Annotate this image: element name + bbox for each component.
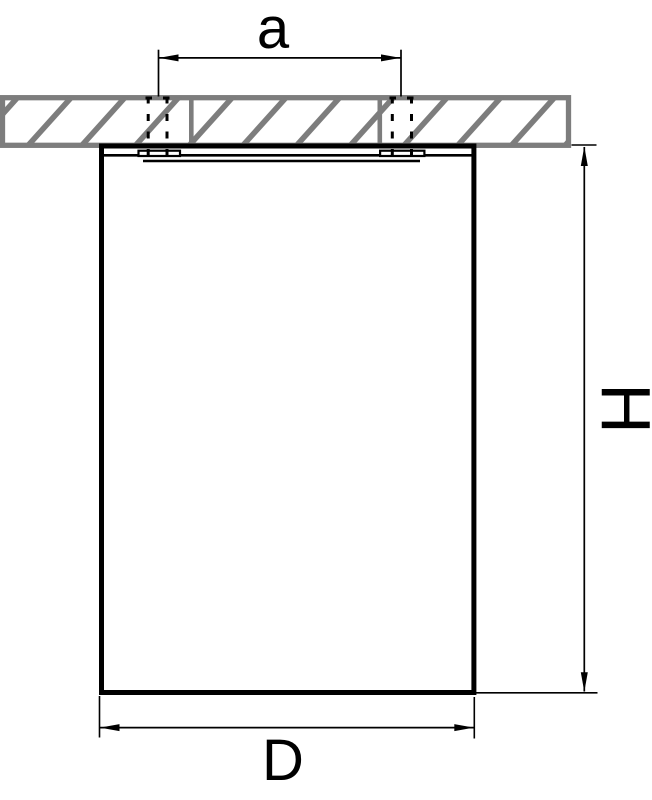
svg-text:D: D xyxy=(262,728,304,793)
svg-text:H: H xyxy=(587,383,652,434)
svg-text:a: a xyxy=(257,0,290,61)
